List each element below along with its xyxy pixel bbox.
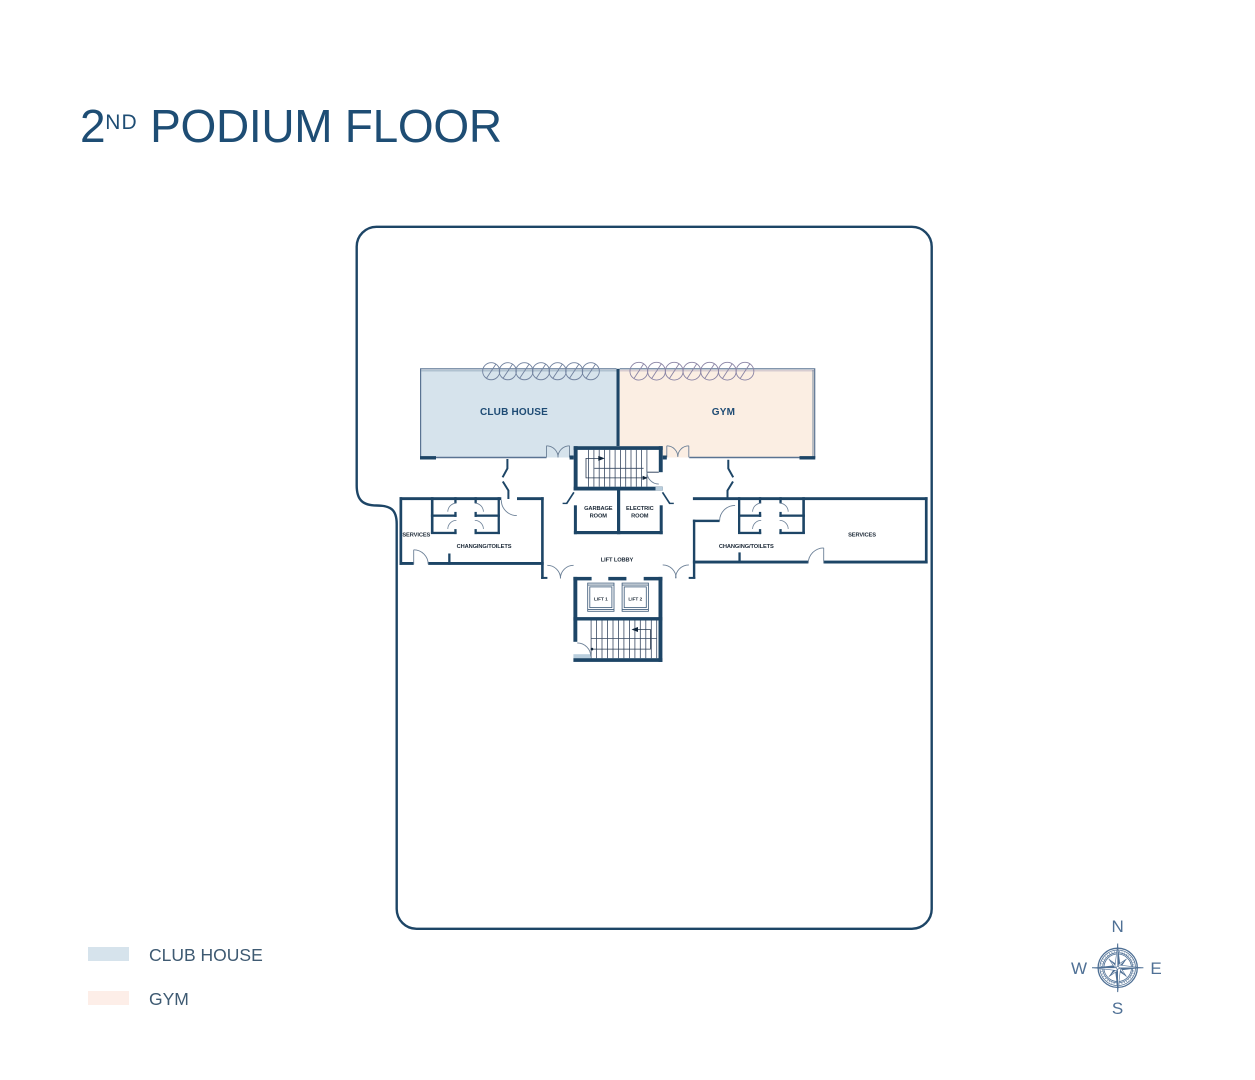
svg-text:CLUB HOUSE: CLUB HOUSE bbox=[480, 407, 548, 418]
svg-text:LIFT 2: LIFT 2 bbox=[628, 597, 642, 602]
svg-text:E: E bbox=[1150, 959, 1161, 978]
svg-text:ROOM: ROOM bbox=[631, 514, 649, 520]
svg-text:N: N bbox=[1111, 917, 1123, 936]
svg-text:SERVICES: SERVICES bbox=[848, 533, 876, 539]
svg-text:ELECTRIC: ELECTRIC bbox=[626, 506, 654, 512]
svg-text:S: S bbox=[1112, 999, 1123, 1018]
svg-text:W: W bbox=[1071, 959, 1087, 978]
svg-text:ROOM: ROOM bbox=[590, 514, 608, 520]
svg-text:GYM: GYM bbox=[712, 407, 735, 418]
svg-text:LIFT 1: LIFT 1 bbox=[594, 597, 608, 602]
svg-text:CHANGING/TOILETS: CHANGING/TOILETS bbox=[719, 544, 774, 550]
svg-text:CHANGING/TOILETS: CHANGING/TOILETS bbox=[457, 544, 512, 550]
svg-text:LIFT LOBBY: LIFT LOBBY bbox=[601, 558, 634, 564]
svg-text:SERVICES: SERVICES bbox=[402, 533, 430, 539]
svg-text:GARBAGE: GARBAGE bbox=[584, 506, 613, 512]
